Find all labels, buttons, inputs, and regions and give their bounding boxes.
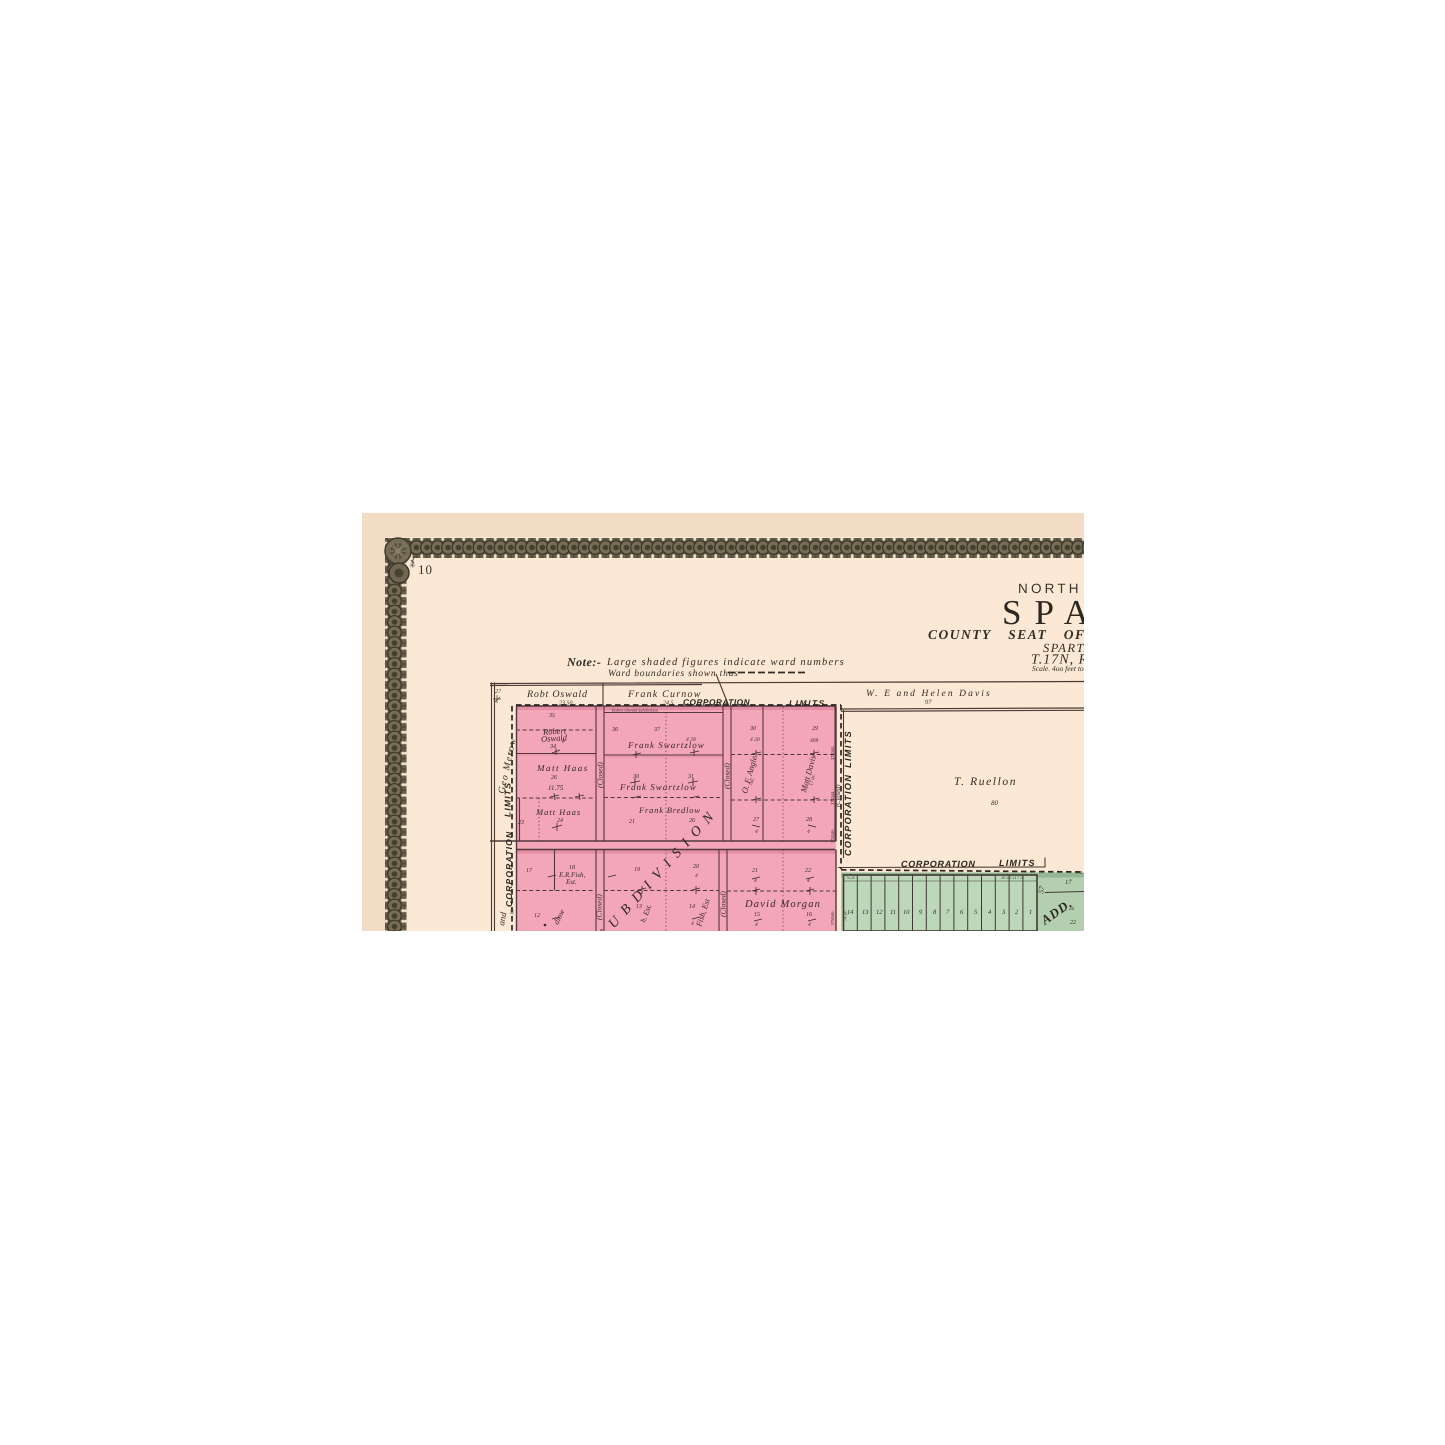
svg-text:LIMITS: LIMITS (789, 698, 826, 708)
svg-text:30: 30 (749, 726, 756, 732)
svg-text:CORPORATION: CORPORATION (901, 859, 976, 869)
svg-text:23: 23 (518, 820, 524, 826)
svg-text:Large shaded figures indicate: Large shaded figures indicate ward numbe… (606, 657, 845, 668)
svg-text:Robt Oswald: Robt Oswald (526, 689, 588, 700)
svg-text:4: 4 (754, 878, 757, 884)
svg-text:4: 4 (808, 922, 811, 928)
svg-text:Matt Haas: Matt Haas (536, 763, 589, 773)
svg-text:27: 27 (753, 817, 760, 823)
svg-text:Frank Swartzlow: Frank Swartzlow (627, 740, 705, 750)
svg-text:Frank Swartzlow: Frank Swartzlow (619, 782, 697, 792)
svg-text:36: 36 (611, 727, 618, 733)
svg-text:17: 17 (526, 868, 533, 874)
svg-text:CORPORATION: CORPORATION (683, 697, 751, 707)
svg-text:28: 28 (806, 817, 812, 823)
svg-text:20: 20 (693, 864, 699, 870)
svg-text:David Morgan: David Morgan (744, 899, 821, 910)
svg-text:11.75: 11.75 (548, 784, 564, 792)
svg-text:22: 22 (805, 868, 811, 874)
svg-text:10: 10 (418, 562, 433, 577)
svg-text:(Closed): (Closed) (723, 763, 732, 789)
svg-text:49 333 14 7 22: 49 333 14 7 22 (1001, 876, 1024, 880)
svg-text:26: 26 (1069, 906, 1075, 912)
svg-text:16: 16 (806, 912, 812, 918)
svg-text:T. Ruellon: T. Ruellon (954, 776, 1017, 788)
svg-text:378346: 378346 (830, 746, 835, 760)
svg-text:23.50: 23.50 (559, 701, 573, 707)
svg-text:Frank Bredlow: Frank Bredlow (638, 805, 701, 815)
svg-text:(Closed): (Closed) (835, 785, 842, 807)
svg-text:26: 26 (551, 775, 557, 781)
svg-text:4: 4 (695, 873, 698, 879)
svg-text:17: 17 (1065, 879, 1072, 886)
svg-text:74.28: 74.28 (846, 876, 855, 880)
svg-text:CORPORATION LIMITS: CORPORATION LIMITS (843, 730, 853, 856)
svg-text:21: 21 (752, 868, 758, 874)
svg-text:Scale. 4oo feet to: Scale. 4oo feet to (1032, 664, 1084, 673)
svg-text:13: 13 (862, 909, 869, 916)
svg-text:24 5: 24 5 (663, 701, 674, 707)
svg-text:✳: ✳ (409, 561, 416, 570)
svg-text:(Closed): (Closed) (595, 894, 604, 920)
svg-text:Robert Oswald Subdivision: Robert Oswald Subdivision (611, 708, 658, 713)
svg-text:409: 409 (810, 738, 819, 744)
svg-text:4: 4 (755, 922, 758, 928)
svg-text:97: 97 (925, 699, 932, 706)
svg-text:35: 35 (548, 713, 555, 719)
svg-text:Note:-: Note:- (566, 655, 601, 669)
svg-text:374344: 374344 (830, 791, 835, 805)
svg-text:4: 4 (807, 829, 810, 835)
svg-text:34: 34 (549, 744, 556, 750)
svg-text:LIMITS: LIMITS (999, 858, 1036, 868)
svg-text:80: 80 (991, 799, 999, 807)
svg-text:#: # (562, 739, 565, 745)
svg-text:11: 11 (890, 909, 896, 916)
svg-text:378346: 378346 (830, 911, 835, 925)
svg-text:4: 4 (691, 921, 694, 927)
svg-text:12: 12 (876, 909, 883, 916)
svg-text:CORPORATION: CORPORATION (504, 831, 514, 907)
svg-text:4: 4 (755, 829, 758, 835)
svg-text:15: 15 (754, 912, 760, 918)
svg-text:Matt Haas: Matt Haas (535, 807, 581, 817)
svg-text:37: 37 (653, 727, 661, 733)
svg-text:COUNTY SEAT OF: COUNTY SEAT OF (928, 627, 1084, 642)
svg-text:Ward boundaries shown thus: Ward boundaries shown thus (608, 669, 739, 679)
svg-text:24: 24 (557, 818, 563, 824)
svg-text:4 20: 4 20 (750, 737, 760, 743)
svg-text:1: 1 (1029, 909, 1032, 916)
svg-text:29: 29 (812, 726, 818, 732)
svg-text:21: 21 (629, 819, 635, 825)
svg-text:30: 30 (632, 774, 639, 780)
svg-text:10: 10 (903, 909, 910, 916)
svg-text:378346: 378346 (830, 829, 835, 843)
svg-text:Est.: Est. (565, 878, 577, 886)
svg-text:14: 14 (689, 904, 695, 910)
svg-text:W. E and Helen Davis: W. E and Helen Davis (866, 689, 992, 699)
svg-text:12: 12 (534, 913, 540, 919)
svg-text:(Closed): (Closed) (596, 762, 605, 788)
svg-text:774.: 774. (1075, 870, 1083, 875)
svg-text:(Closed): (Closed) (719, 891, 728, 917)
svg-text:27: 27 (495, 689, 502, 695)
svg-text:22: 22 (1070, 920, 1076, 926)
svg-text:14: 14 (847, 909, 854, 916)
svg-text:19: 19 (634, 867, 640, 873)
